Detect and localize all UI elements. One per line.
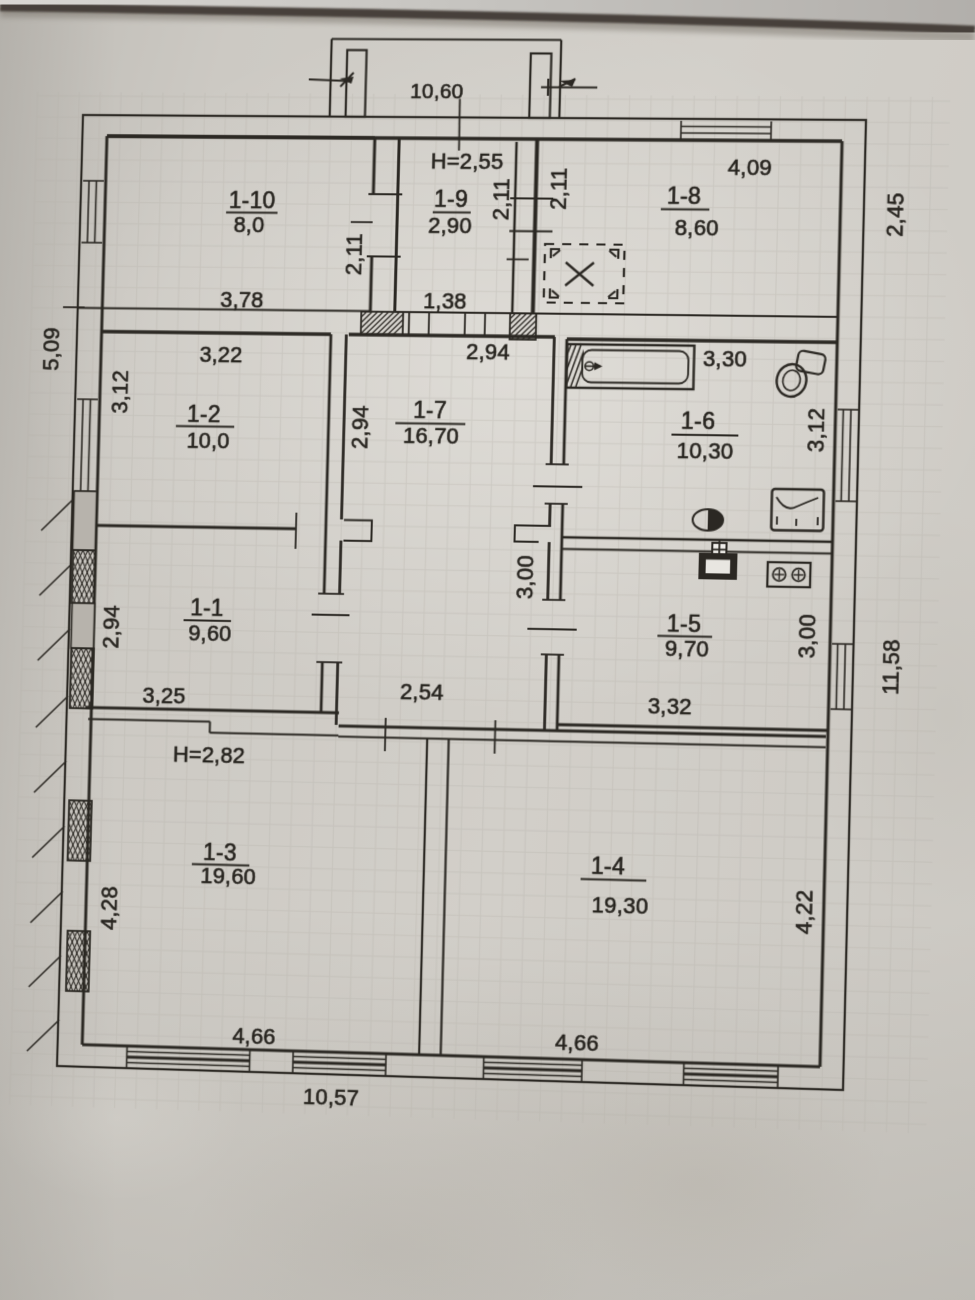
svg-text:3,22: 3,22 <box>199 341 243 367</box>
svg-text:3,12: 3,12 <box>803 408 830 453</box>
svg-text:2,94: 2,94 <box>98 605 124 649</box>
svg-text:H=2,82: H=2,82 <box>173 741 246 768</box>
svg-text:1,38: 1,38 <box>423 288 467 314</box>
svg-text:2,11: 2,11 <box>341 233 367 275</box>
svg-text:1-3: 1-3 <box>203 839 237 865</box>
svg-text:4,09: 4,09 <box>728 154 773 180</box>
svg-text:9,70: 9,70 <box>665 635 710 662</box>
svg-text:9,60: 9,60 <box>188 620 232 646</box>
svg-text:16,70: 16,70 <box>403 423 460 449</box>
svg-text:2,94: 2,94 <box>466 339 510 365</box>
svg-text:3,00: 3,00 <box>512 555 539 600</box>
svg-text:19,60: 19,60 <box>200 862 256 889</box>
svg-text:10,57: 10,57 <box>303 1083 360 1110</box>
svg-text:2,45: 2,45 <box>882 192 909 237</box>
svg-text:10,0: 10,0 <box>186 427 230 453</box>
svg-text:10,30: 10,30 <box>676 438 733 465</box>
svg-text:H=2,55: H=2,55 <box>430 148 503 174</box>
svg-text:1-5: 1-5 <box>667 611 702 637</box>
svg-text:2,54: 2,54 <box>400 678 444 705</box>
svg-text:4,28: 4,28 <box>96 886 122 930</box>
svg-text:2,94: 2,94 <box>347 405 373 449</box>
svg-text:2,90: 2,90 <box>428 212 472 238</box>
svg-text:2,11: 2,11 <box>488 178 515 220</box>
svg-text:1-8: 1-8 <box>667 183 702 209</box>
svg-text:3,30: 3,30 <box>703 345 748 371</box>
svg-text:4,66: 4,66 <box>555 1029 600 1056</box>
svg-text:4,66: 4,66 <box>232 1023 276 1050</box>
svg-text:1-6: 1-6 <box>681 408 716 434</box>
svg-text:3,78: 3,78 <box>220 286 264 312</box>
svg-text:1-2: 1-2 <box>187 401 221 427</box>
svg-text:1-10: 1-10 <box>229 187 276 213</box>
svg-text:8,0: 8,0 <box>233 211 265 237</box>
svg-text:10,60: 10,60 <box>410 79 464 103</box>
svg-text:1-9: 1-9 <box>434 186 468 212</box>
svg-text:3,32: 3,32 <box>647 693 692 720</box>
svg-text:11,58: 11,58 <box>877 639 904 695</box>
svg-text:2,11: 2,11 <box>545 167 572 210</box>
svg-text:3,25: 3,25 <box>142 682 186 708</box>
svg-text:8,60: 8,60 <box>674 215 719 241</box>
svg-text:3,12: 3,12 <box>107 370 133 414</box>
svg-text:4,22: 4,22 <box>790 889 817 934</box>
svg-text:1-1: 1-1 <box>190 595 224 621</box>
svg-text:1-4: 1-4 <box>591 853 626 880</box>
svg-text:3,00: 3,00 <box>794 614 821 659</box>
svg-text:1-7: 1-7 <box>413 397 447 423</box>
svg-text:19,30: 19,30 <box>591 891 648 918</box>
svg-text:5,09: 5,09 <box>38 327 64 371</box>
